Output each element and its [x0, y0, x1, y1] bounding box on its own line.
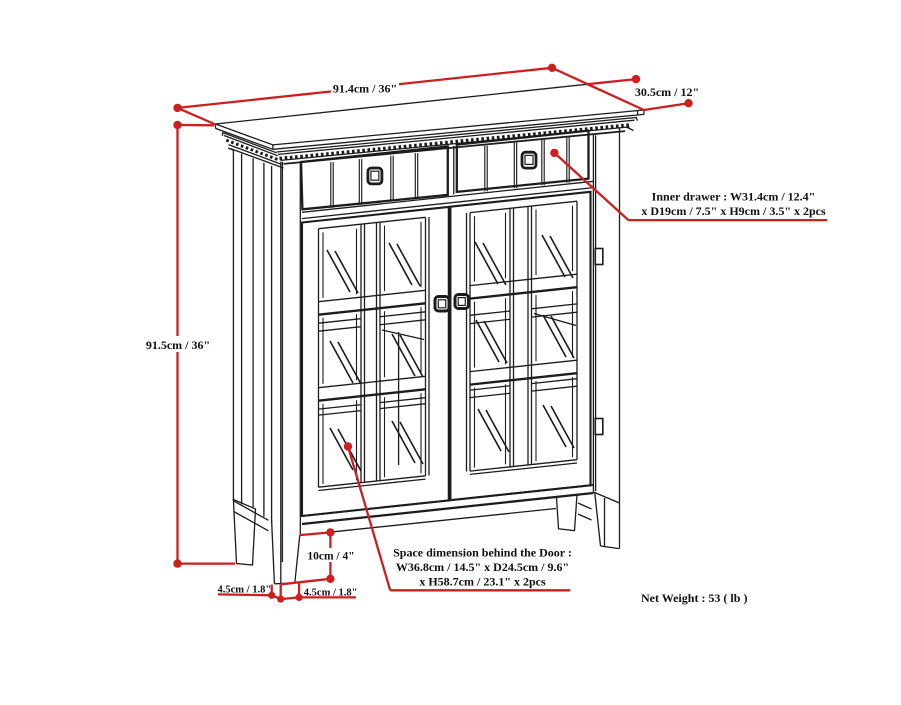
svg-text:4.5cm / 1.8": 4.5cm / 1.8" — [218, 585, 272, 596]
svg-text:W36.8cm / 14.5" x D24.5cm / 9.: W36.8cm / 14.5" x D24.5cm / 9.6" — [396, 560, 569, 574]
svg-text:10cm / 4": 10cm / 4" — [307, 551, 354, 563]
svg-text:Space dimension behind the Doo: Space dimension behind the Door : — [393, 545, 572, 559]
svg-text:91.4cm / 36": 91.4cm / 36" — [333, 82, 397, 96]
svg-text:x H58.7cm / 23.1" x 2pcs: x H58.7cm / 23.1" x 2pcs — [419, 574, 546, 588]
svg-text:30.5cm / 12": 30.5cm / 12" — [635, 85, 699, 99]
svg-text:Net Weight : 53 ( lb ): Net Weight : 53 ( lb ) — [641, 591, 747, 605]
svg-text:91.5cm / 36": 91.5cm / 36" — [146, 338, 210, 352]
svg-text:x D19cm / 7.5" x H9cm / 3.5" x: x D19cm / 7.5" x H9cm / 3.5" x 2pcs — [641, 204, 826, 218]
svg-text:Inner drawer : W31.4cm / 12.4": Inner drawer : W31.4cm / 12.4" — [652, 189, 816, 203]
svg-text:4.5cm / 1.8": 4.5cm / 1.8" — [304, 588, 358, 599]
